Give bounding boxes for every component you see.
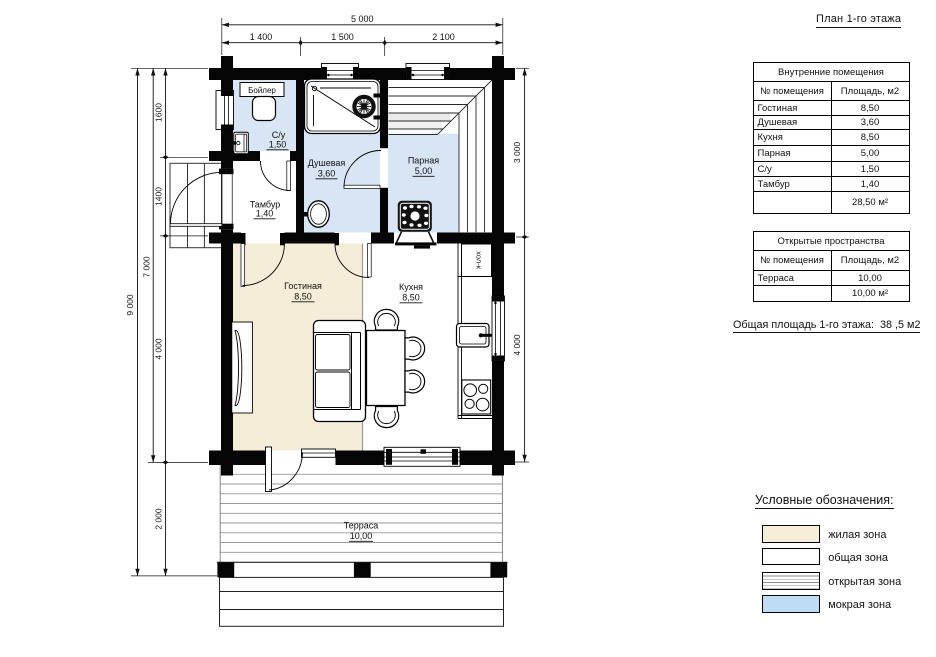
svg-text:4 000: 4 000 xyxy=(154,338,164,360)
svg-text:9 000: 9 000 xyxy=(125,294,135,316)
svg-text:1,40: 1,40 xyxy=(256,209,274,219)
svg-text:2 100: 2 100 xyxy=(432,32,455,42)
svg-text:7 000: 7 000 xyxy=(141,256,151,278)
svg-text:5 000: 5 000 xyxy=(351,14,374,24)
svg-text:Кухня: Кухня xyxy=(399,282,423,292)
svg-text:3,60: 3,60 xyxy=(318,169,336,179)
svg-text:1,50: 1,50 xyxy=(269,140,287,150)
svg-text:1400: 1400 xyxy=(154,187,164,206)
svg-text:2 000: 2 000 xyxy=(154,508,164,530)
svg-text:4 000: 4 000 xyxy=(512,334,522,356)
svg-text:1 400: 1 400 xyxy=(250,32,273,42)
svg-text:1 500: 1 500 xyxy=(331,32,354,42)
svg-text:Парная: Парная xyxy=(408,156,439,166)
svg-text:С/у: С/у xyxy=(272,130,286,140)
svg-text:Бойлер: Бойлер xyxy=(248,86,276,95)
svg-text:8,50: 8,50 xyxy=(402,293,420,303)
svg-text:хол-к: хол-к xyxy=(475,251,484,270)
svg-text:10,00: 10,00 xyxy=(350,531,373,541)
svg-text:3 000: 3 000 xyxy=(512,142,522,164)
svg-text:Терраса: Терраса xyxy=(344,521,379,531)
svg-text:Гостиная: Гостиная xyxy=(284,281,322,291)
svg-text:5,00: 5,00 xyxy=(415,166,433,176)
svg-text:1600: 1600 xyxy=(154,103,164,122)
svg-text:8,50: 8,50 xyxy=(294,292,312,302)
svg-text:Душевая: Душевая xyxy=(308,158,346,168)
